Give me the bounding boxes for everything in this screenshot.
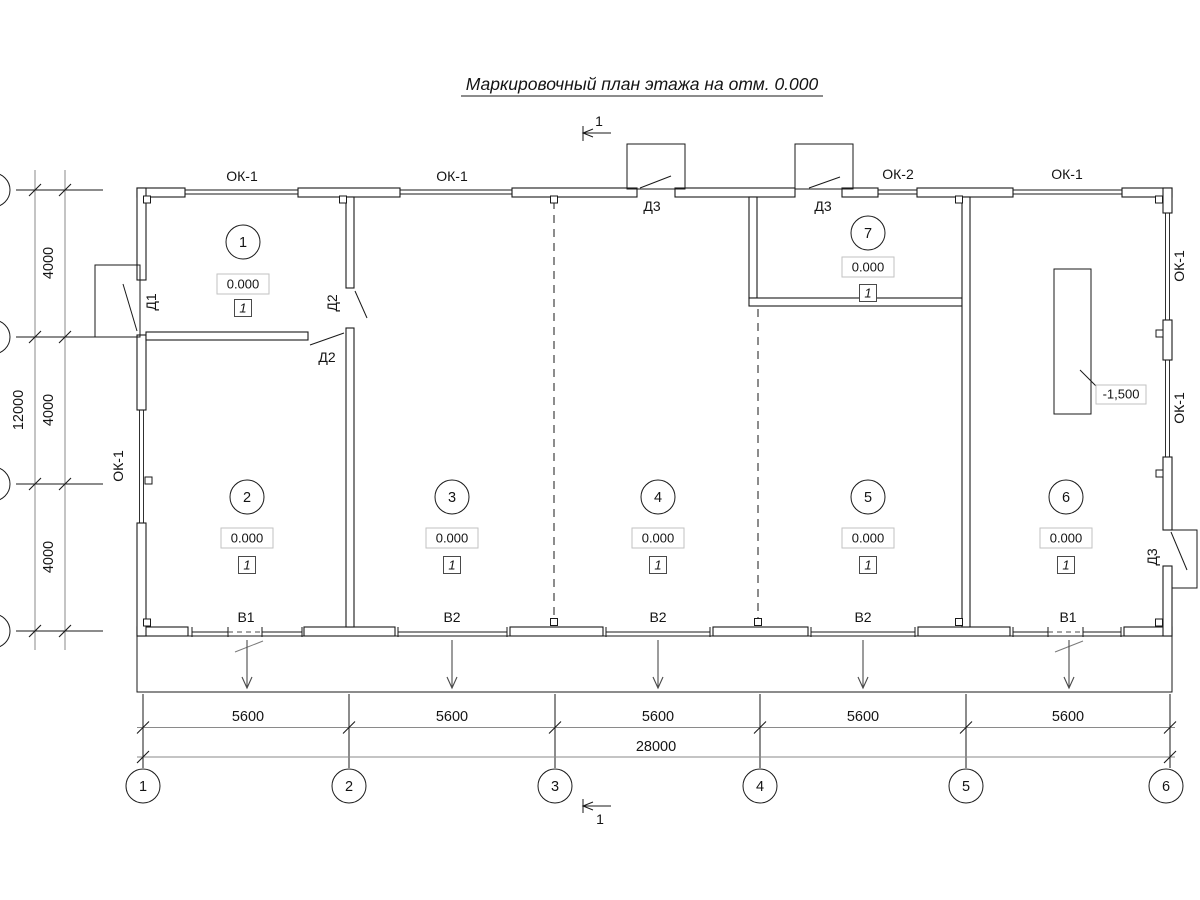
room-marker-5: 5 0.000 1 [842,480,894,574]
gate-label-v1: В1 [1059,609,1076,625]
room-elevation: 0.000 [1050,531,1083,546]
floor-plan-drawing: Маркировочный план этажа на отм. 0.000 1… [0,0,1200,900]
svg-text:1: 1 [139,779,147,795]
dim-row-3: 4000 [41,541,57,573]
room-marker-2: 2 0.000 1 [221,480,273,574]
svg-text:4: 4 [654,490,662,506]
svg-text:3: 3 [448,490,456,506]
window-ok1-bay1 [185,188,298,197]
room-finish-type: 1 [654,558,661,573]
section-mark-top: 1 [583,113,611,141]
right-landing-outline [1172,530,1197,588]
svg-text:7: 7 [864,226,872,242]
window-label-ok2: ОК-2 [882,166,914,182]
apron-outline [137,636,1172,692]
grid-bubble-row [0,614,10,648]
bottom-dimensions: 5600 5600 5600 5600 5600 28000 [137,694,1176,768]
svg-text:2: 2 [345,779,353,795]
windows [137,188,1172,523]
drawing-title: Маркировочный план этажа на отм. 0.000 [461,74,823,96]
room-finish-type: 1 [243,558,250,573]
svg-text:4: 4 [756,779,764,795]
gate-label-v2: В2 [854,609,871,625]
dim-bay-4: 5600 [847,709,879,725]
room-elevation: 0.000 [852,260,885,275]
room-elevation: 0.000 [642,531,675,546]
window-ok1-bay5-top [1013,188,1122,197]
wall-room7-bottom [749,298,962,306]
dim-bay-1: 5600 [232,709,264,725]
room-marker-7: 7 0.000 1 [842,216,894,302]
window-ok1-bay2 [400,188,512,197]
dim-bay-3: 5600 [642,709,674,725]
wall-room1-room3 [346,197,354,288]
door-d2-lower-leaf [310,333,344,345]
wall-room6-left [962,197,970,627]
wall-room2-room3 [346,328,354,627]
svg-text:5: 5 [864,490,872,506]
grid-bubble-row [0,173,10,207]
door-d1-leaf [123,284,137,331]
window-label-ok1: ОК-1 [110,450,126,482]
svg-text:3: 3 [551,779,559,795]
window-label-ok1: ОК-1 [436,168,468,184]
room-marker-6: 6 0.000 1 [1040,480,1092,574]
room-elevation: 0.000 [436,531,469,546]
section-mark-bottom: 1 [583,799,611,827]
wall-room1-room2 [146,332,308,340]
door-label-d2: Д2 [318,349,335,365]
room-finish-type: 1 [239,301,246,316]
dim-rows-total: 12000 [11,390,27,430]
room-finish-type: 1 [1062,558,1069,573]
room-elevation: 0.000 [231,531,264,546]
door-label-d2: Д2 [324,294,340,311]
room-marker-4: 4 0.000 1 [632,480,684,574]
room-elevation: 0.000 [227,277,260,292]
pit-outline [1054,269,1091,414]
gate-label-v2: В2 [649,609,666,625]
left-dimensions: 4000 4000 4000 12000 [0,170,103,650]
inspection-pit: -1,500 [1054,269,1146,414]
room-finish-type: 1 [864,558,871,573]
door-d2-upper-leaf [355,291,367,318]
mark-labels: ОК-1 ОК-1 ОК-2 ОК-1 Д3 Д3 ОК-1 ОК-1 Д3 О… [110,166,1187,566]
door-d3-right-leaf [1171,532,1187,570]
grid-bubble-row [0,320,10,354]
svg-text:6: 6 [1162,779,1170,795]
door-label-d3: Д3 [814,198,831,214]
porch-outline [95,265,140,337]
room-elevation: 0.000 [852,531,885,546]
room-finish-type: 1 [448,558,455,573]
window-label-ok1: ОК-1 [226,168,258,184]
svg-text:2: 2 [243,490,251,506]
room-marker-1: 1 0.000 1 [217,225,269,317]
dim-row-1: 4000 [41,247,57,279]
door-label-d3: Д3 [643,198,660,214]
window-label-ok1: ОК-1 [1171,250,1187,282]
dim-row-2: 4000 [41,394,57,426]
gate-label-v1: В1 [237,609,254,625]
section-label: 1 [595,113,603,129]
pit-leader-line [1080,370,1098,388]
dim-total: 28000 [636,739,676,755]
window-label-ok1: ОК-1 [1051,166,1083,182]
svg-text:6: 6 [1062,490,1070,506]
dim-bay-5: 5600 [1052,709,1084,725]
window-label-ok1: ОК-1 [1171,392,1187,424]
room-finish-type: 1 [864,286,871,301]
window-ok1-left [137,410,146,523]
gate-label-v2: В2 [443,609,460,625]
pit-elevation-label: -1,500 [1103,387,1140,402]
svg-text:1: 1 [239,235,247,251]
door-label-d1: Д1 [143,293,159,310]
door-d3-leaf-1 [640,176,671,188]
window-ok2-top [878,188,917,197]
grid-bubble-row [0,467,10,501]
grid-bubbles-columns: 1 2 3 4 5 6 [126,769,1183,803]
door-label-d3: Д3 [1144,548,1160,565]
page-title: Маркировочный план этажа на отм. 0.000 [466,74,819,94]
drawing-sheet: Маркировочный план этажа на отм. 0.000 1… [0,0,1200,900]
wall-room7-left [749,197,757,298]
section-label: 1 [596,811,604,827]
dim-bay-2: 5600 [436,709,468,725]
room-marker-3: 3 0.000 1 [426,480,478,574]
svg-text:5: 5 [962,779,970,795]
door-d3-leaf-2 [809,177,840,188]
